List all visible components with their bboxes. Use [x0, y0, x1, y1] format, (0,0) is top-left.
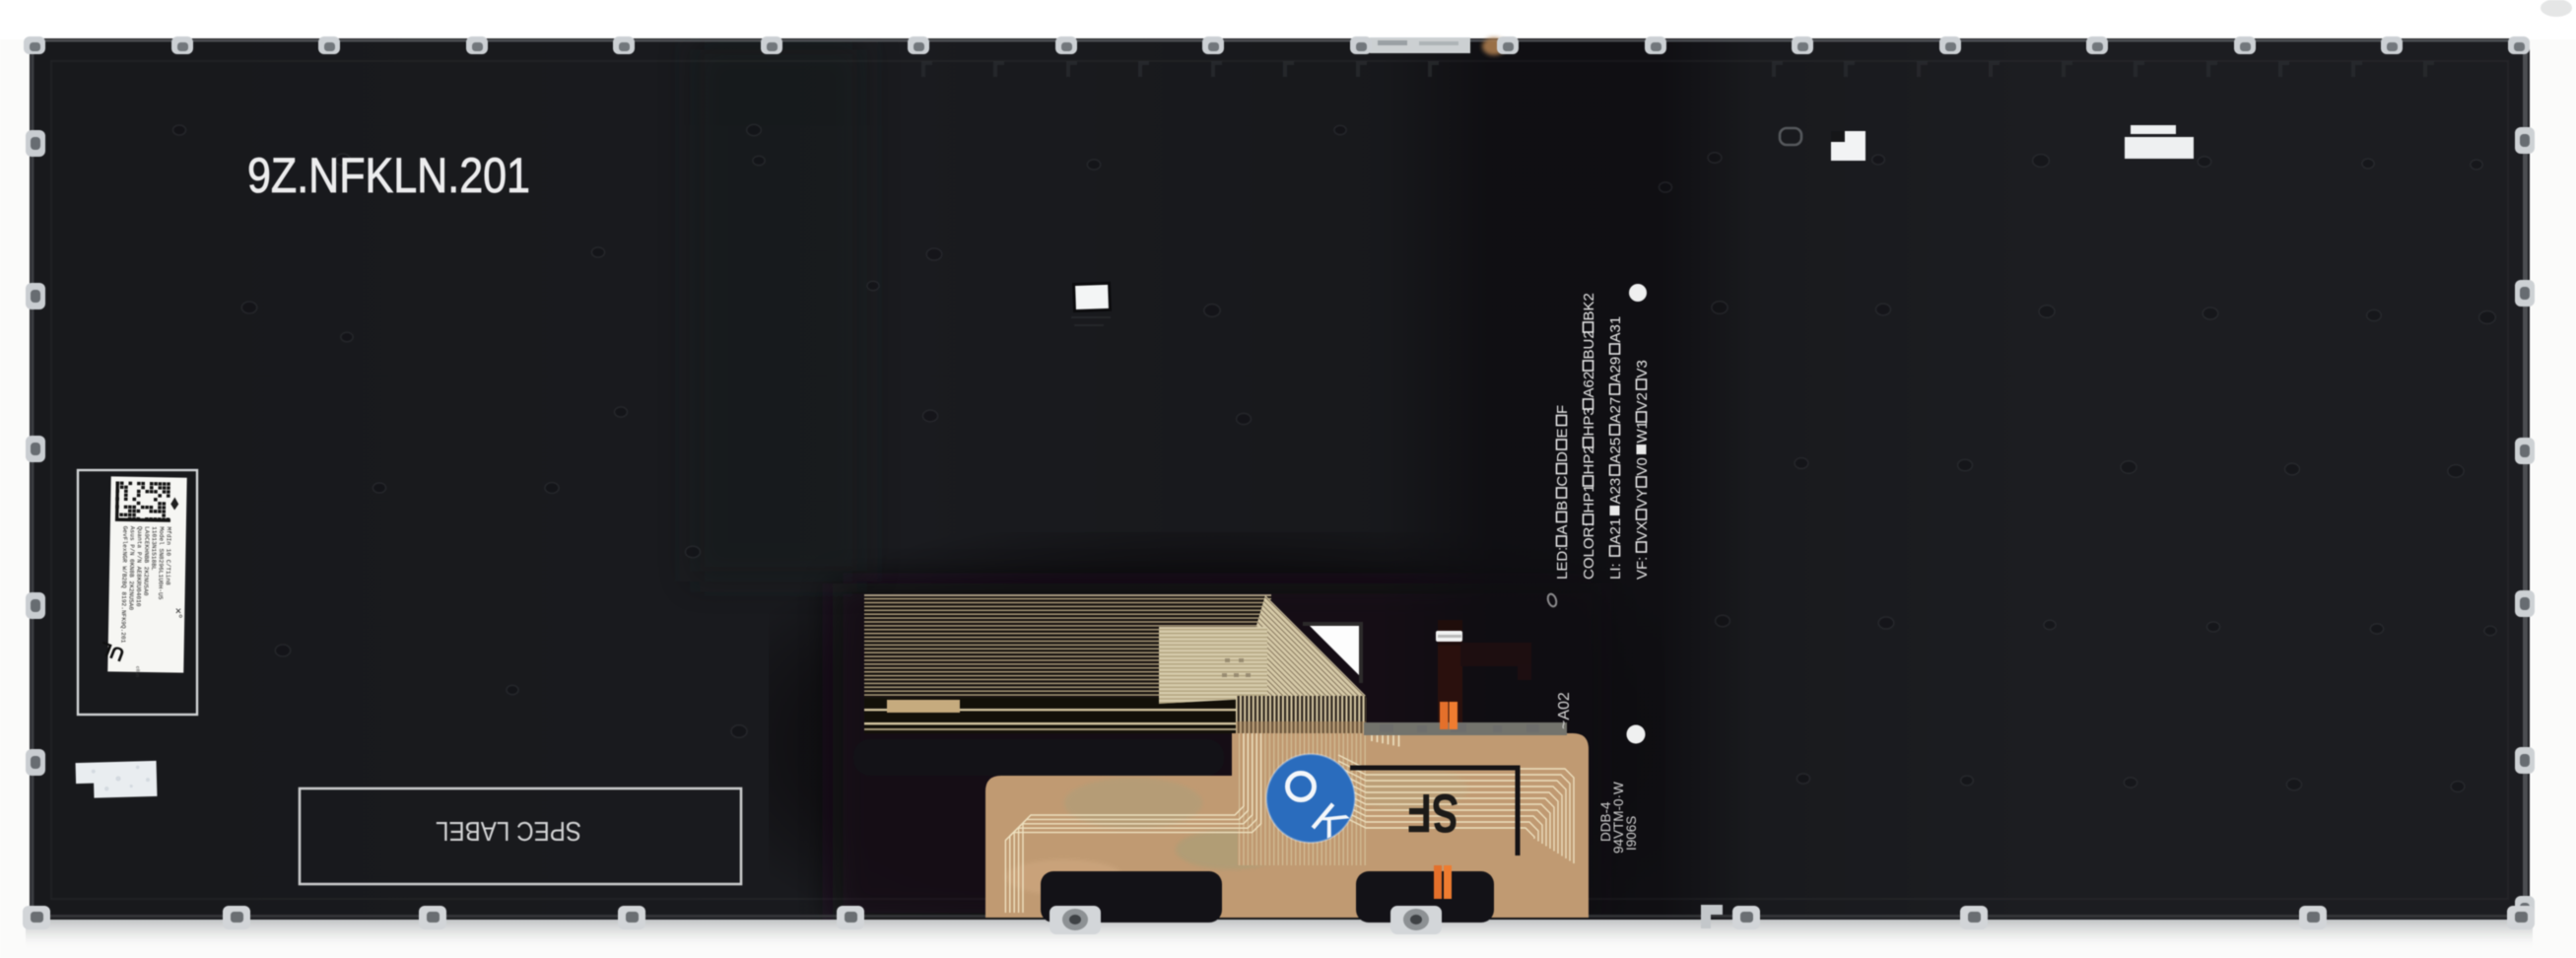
svg-text:~A02: ~A02	[1556, 692, 1573, 729]
svg-text:D: D	[1554, 451, 1571, 462]
svg-text:HP3: HP3	[1581, 407, 1597, 436]
svg-text:E: E	[1554, 428, 1571, 438]
svg-text:B: B	[1554, 501, 1571, 511]
svg-text:A21: A21	[1607, 518, 1624, 545]
svg-text:V3: V3	[1634, 360, 1651, 377]
svg-text:SF: SF	[1407, 783, 1458, 845]
svg-text:VX: VX	[1634, 520, 1651, 540]
svg-text:A27: A27	[1607, 397, 1624, 424]
svg-text:C: C	[1554, 476, 1571, 487]
svg-text:COLOR:: COLOR:	[1581, 522, 1597, 580]
svg-text:LA9CEKHNBB 2K2NU5A0: LA9CEKHNBB 2K2NU5A0	[142, 526, 150, 596]
svg-text:V0: V0	[1634, 457, 1651, 475]
svg-text:A25: A25	[1607, 438, 1624, 464]
svg-text:HP1: HP1	[1581, 484, 1597, 513]
svg-text:LED:: LED:	[1554, 547, 1571, 580]
svg-text:9Z.NFKLN.201: 9Z.NFKLN.201	[247, 148, 530, 203]
svg-text:V2: V2	[1634, 392, 1651, 410]
svg-text:×°: ×°	[171, 607, 183, 618]
svg-text:Quanta P/N AE8KRU04010: Quanta P/N AE8KRU04010	[135, 526, 143, 607]
svg-text:LI:: LI:	[1607, 563, 1624, 580]
svg-text:W1: W1	[1634, 421, 1651, 444]
svg-text:SPEC LABEL: SPEC LABEL	[436, 816, 581, 847]
svg-text:BK2: BK2	[1581, 293, 1597, 320]
svg-text:A31: A31	[1607, 316, 1624, 343]
svg-text:A29: A29	[1607, 357, 1624, 383]
svg-text:11013N1518BL: 11013N1518BL	[150, 526, 158, 571]
svg-text:c®us: c®us	[134, 666, 141, 678]
svg-text:I906S: I906S	[1624, 816, 1639, 851]
svg-text:A23: A23	[1607, 478, 1624, 505]
svg-text:HP2: HP2	[1581, 445, 1597, 474]
svg-text:Asus P/N 0KN8B 2K2NU5A0: Asus P/N 0KN8B 2K2NU5A0	[127, 526, 135, 611]
svg-text:VF:: VF:	[1634, 557, 1651, 580]
svg-text:F: F	[1554, 405, 1571, 414]
svg-text:BU2: BU2	[1581, 330, 1597, 359]
svg-text:A62: A62	[1581, 372, 1597, 398]
svg-text:A: A	[1554, 524, 1571, 534]
svg-text:Model SN8296L1U0H-U5: Model SN8296L1U0H-U5	[157, 526, 165, 600]
svg-text:VY: VY	[1634, 488, 1651, 508]
svg-text:MfdIn 10 C/T1in8: MfdIn 10 C/T1in8	[165, 526, 172, 585]
